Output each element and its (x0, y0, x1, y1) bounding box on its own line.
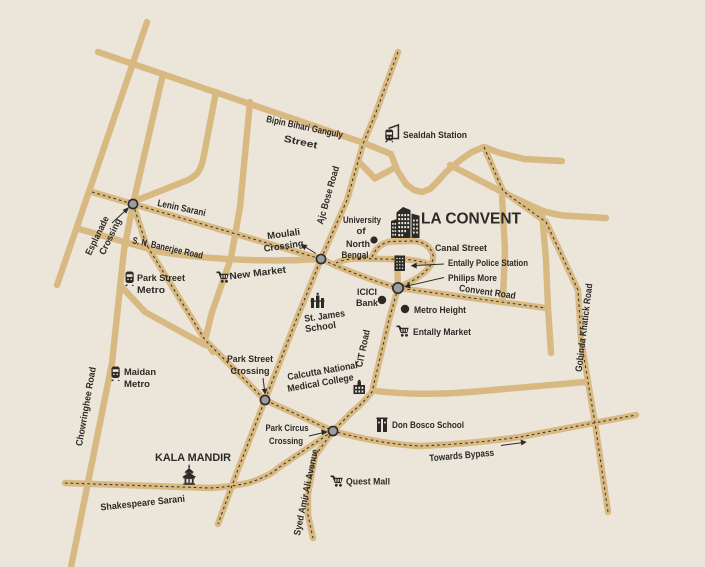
svg-text:Canal Street: Canal Street (435, 243, 488, 254)
svg-text:Bank: Bank (356, 298, 379, 309)
svg-text:North: North (346, 239, 370, 250)
svg-text:Park Street: Park Street (227, 354, 274, 365)
svg-text:Entally Police Station: Entally Police Station (448, 258, 528, 269)
svg-text:Maidan: Maidan (124, 367, 156, 378)
svg-text:Entally Market: Entally Market (413, 327, 472, 338)
svg-text:Crossing: Crossing (231, 366, 270, 377)
svg-text:of: of (357, 226, 367, 237)
svg-text:Metro: Metro (137, 285, 165, 296)
svg-text:Park Circus: Park Circus (266, 423, 309, 434)
svg-text:ICICI: ICICI (357, 287, 377, 298)
svg-text:KALA MANDIR: KALA MANDIR (155, 452, 231, 464)
svg-text:Don Bosco School: Don Bosco School (392, 420, 464, 431)
svg-text:Crossing: Crossing (269, 436, 303, 447)
svg-text:Bengal: Bengal (342, 250, 369, 261)
svg-text:Sealdah Station: Sealdah Station (403, 130, 467, 141)
svg-text:LA CONVENT: LA CONVENT (421, 211, 522, 228)
svg-text:Philips More: Philips More (448, 273, 497, 284)
svg-text:University: University (343, 215, 382, 226)
svg-text:Park Street: Park Street (137, 273, 186, 284)
svg-text:Metro: Metro (124, 379, 150, 390)
svg-text:Metro Height: Metro Height (414, 305, 467, 316)
svg-text:Quest Mall: Quest Mall (346, 477, 390, 488)
